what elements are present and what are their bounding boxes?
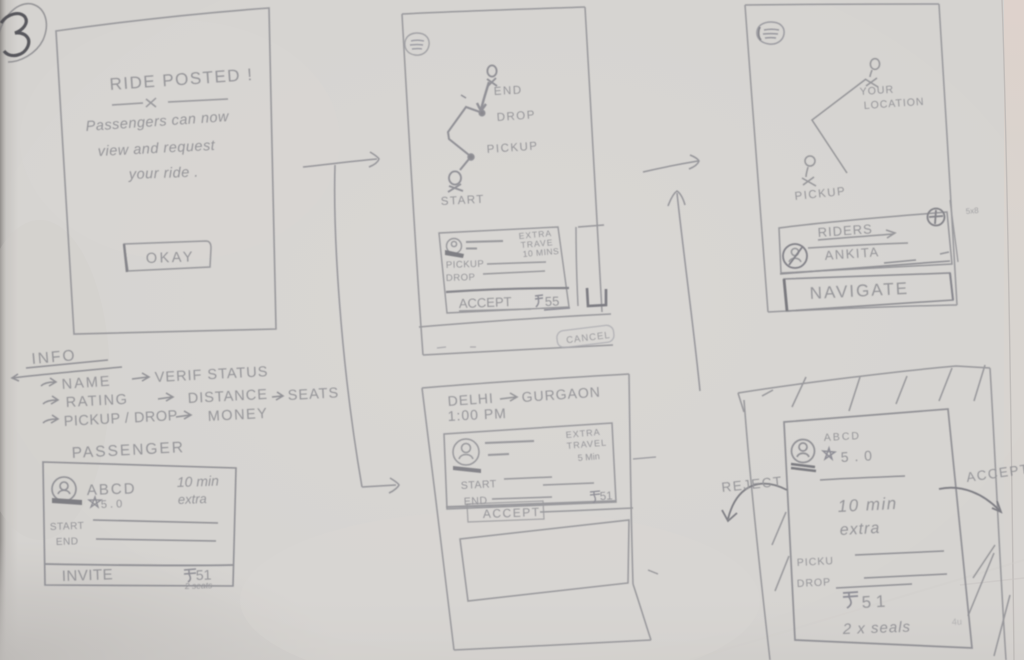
svg-text:END: END <box>56 536 79 548</box>
svg-text:your ride .: your ride . <box>128 165 199 183</box>
svg-text:5 . 0: 5 . 0 <box>101 498 123 511</box>
svg-text:1:00 PM: 1:00 PM <box>447 405 507 424</box>
svg-text:END: END <box>494 85 523 98</box>
svg-text:extra: extra <box>839 520 880 539</box>
svg-text:ABCD: ABCD <box>87 480 137 499</box>
svg-text:5 . 0: 5 . 0 <box>840 447 873 465</box>
svg-text:10 min: 10 min <box>837 494 898 516</box>
svg-text:MONEY: MONEY <box>207 406 268 425</box>
svg-text:extra: extra <box>178 491 207 507</box>
svg-text:5x8: 5x8 <box>965 206 979 216</box>
svg-text:ACCEPT: ACCEPT <box>459 294 512 311</box>
svg-text:2 x seals: 2 x seals <box>842 619 912 638</box>
svg-text:55: 55 <box>545 294 560 309</box>
svg-text:DROP: DROP <box>797 576 832 590</box>
svg-text:INVITE: INVITE <box>62 566 114 585</box>
svg-text:ACCEPT: ACCEPT <box>483 505 541 521</box>
svg-text:10 min: 10 min <box>177 473 220 490</box>
svg-text:PICKUP: PICKUP <box>446 259 485 271</box>
svg-text:START: START <box>461 478 498 492</box>
svg-text:START: START <box>441 194 486 208</box>
svg-text:RATING: RATING <box>65 392 128 411</box>
svg-text:SEATS: SEATS <box>287 385 339 404</box>
svg-text:5 Min: 5 Min <box>577 451 600 463</box>
svg-text:YOUR: YOUR <box>859 84 894 98</box>
svg-text:ABCD: ABCD <box>824 430 862 444</box>
svg-text:4u: 4u <box>952 616 963 627</box>
svg-text:5 1: 5 1 <box>861 592 886 612</box>
svg-text:DROP: DROP <box>446 272 476 284</box>
svg-text:51: 51 <box>600 490 613 503</box>
svg-text:START: START <box>50 521 85 533</box>
svg-text:PICKU: PICKU <box>797 555 835 569</box>
svg-text:OKAY: OKAY <box>146 249 196 267</box>
